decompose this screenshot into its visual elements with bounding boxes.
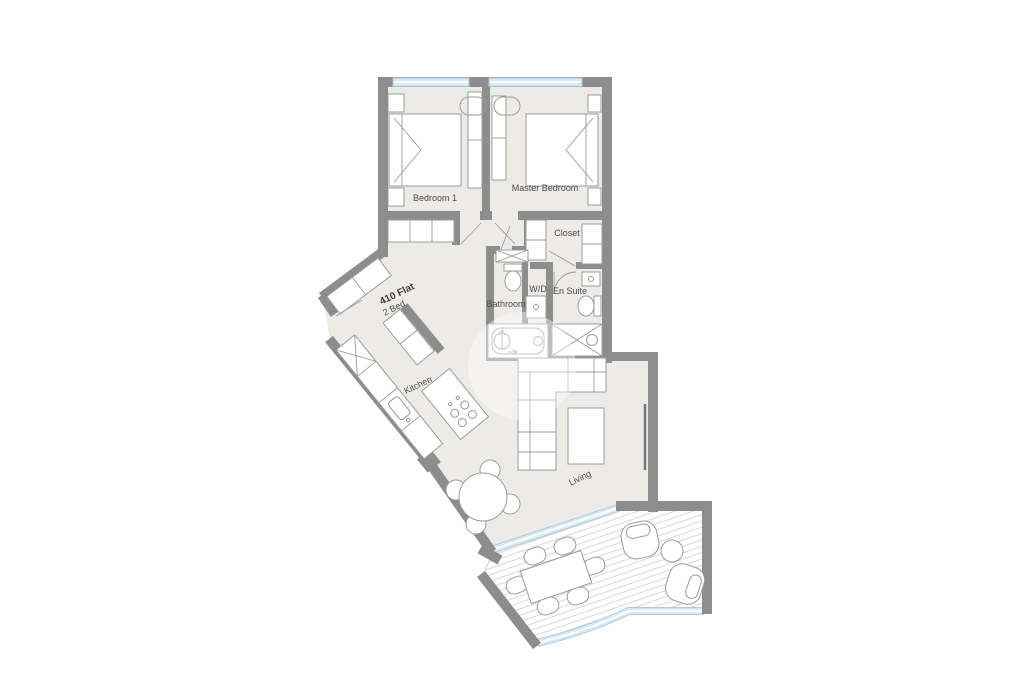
ensuite-toilet-tank: [594, 296, 601, 316]
room-label-wd: W/D: [529, 284, 547, 294]
room-label-master-bedroom: Master Bedroom: [512, 183, 579, 193]
floor-plan-canvas: Bedroom 1 Master Bedroom Closet W/D En S…: [0, 0, 1024, 694]
room-label-bathroom: Bathroom: [486, 299, 525, 309]
bedroom1-bed-symbol: [389, 114, 461, 186]
toilet-tank-symbol: [504, 264, 522, 271]
room-label-en-suite: En Suite: [553, 286, 587, 296]
floor-plan-page: Bedroom 1 Master Bedroom Closet W/D En S…: [0, 0, 1024, 694]
toilet-symbol: [505, 271, 521, 291]
coffee-table-symbol: [568, 408, 604, 464]
watermark: [468, 312, 576, 420]
hall-cabinets: [388, 220, 454, 242]
ensuite-toilet-symbol: [578, 296, 594, 316]
terrace-side-table: [661, 540, 683, 562]
ensuite-sink-symbol: [582, 272, 600, 286]
master-bed-symbol: [526, 114, 598, 186]
room-label-closet: Closet: [554, 228, 580, 238]
room-label-bedroom1: Bedroom 1: [413, 193, 457, 203]
